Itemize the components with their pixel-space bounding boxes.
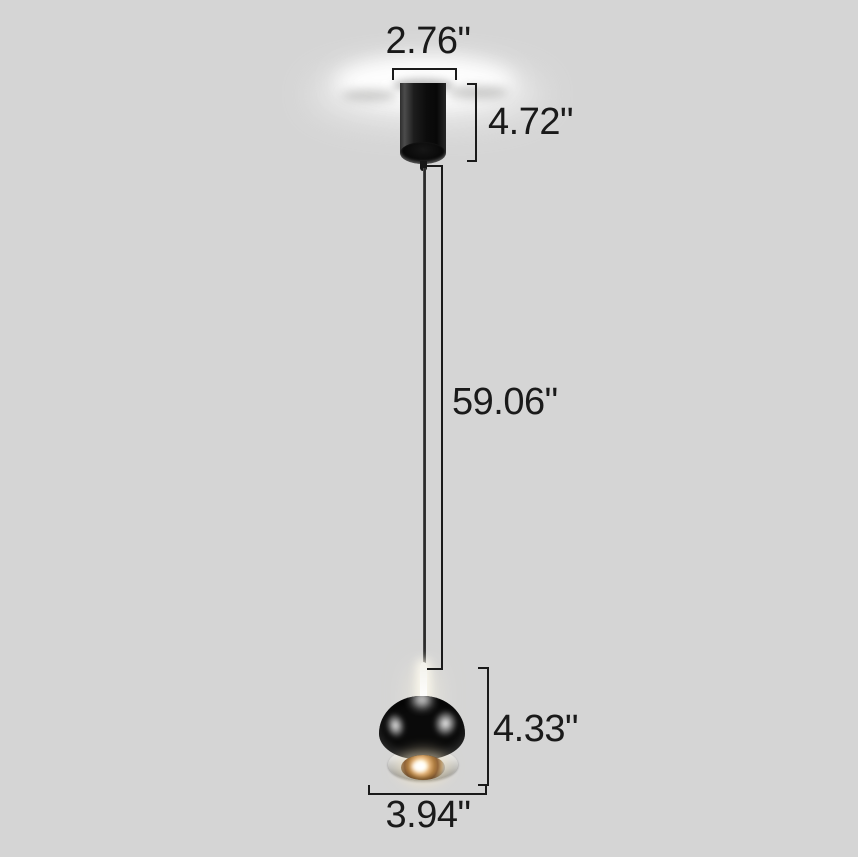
cord-length-bracket: [427, 165, 443, 670]
canopy-width-bracket: [392, 68, 457, 80]
canopy-height-bracket: [467, 83, 477, 162]
lamp-head: [370, 690, 490, 790]
head-height-bracket: [478, 667, 489, 786]
head-width-label: 3.94": [386, 796, 471, 834]
canopy-width-label: 2.76": [386, 22, 471, 60]
body-reflection-right: [427, 704, 464, 744]
lens-hotspot: [412, 761, 427, 772]
ceiling-shadow-right: [448, 86, 508, 99]
product-dimension-diagram: 2.76" 4.72" 59.06" 4.33" 3.94": [0, 0, 858, 857]
ceiling-shadow-left: [342, 90, 397, 101]
canopy-height-label: 4.72": [488, 103, 573, 141]
body-reflection-left: [380, 707, 411, 744]
suspension-cord: [423, 168, 426, 666]
body-top-glow: [413, 696, 431, 707]
lamp-body: [379, 696, 465, 759]
head-height-label: 4.33": [493, 710, 578, 748]
cord-length-label: 59.06": [452, 383, 558, 421]
lamp-lens: [401, 755, 445, 780]
